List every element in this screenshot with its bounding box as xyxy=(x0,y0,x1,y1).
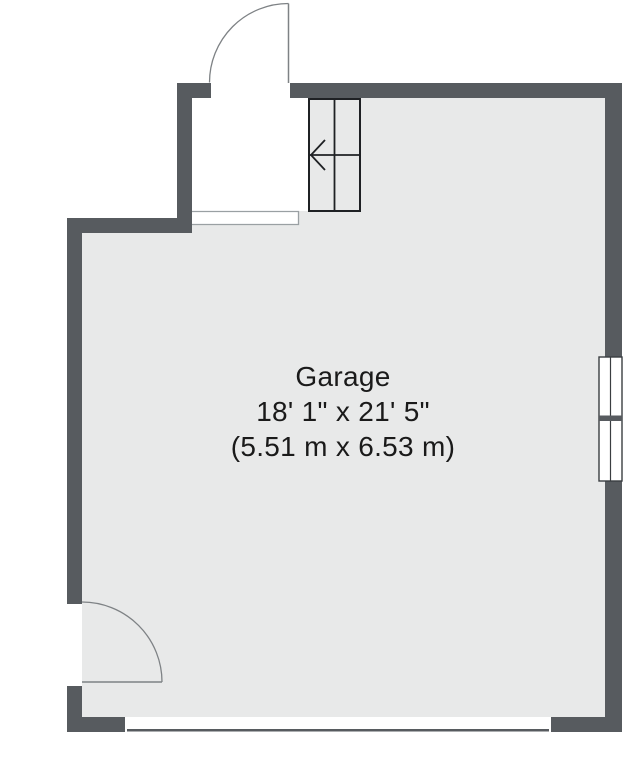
garage-door-line xyxy=(127,729,549,732)
wall-left-upper xyxy=(67,218,82,604)
right-wall-window xyxy=(599,357,622,481)
floor-plan: Garage 18' 1" x 21' 5" (5.51 m x 6.53 m) xyxy=(0,0,625,768)
room-dimensions-imperial: 18' 1" x 21' 5" xyxy=(103,394,583,429)
wall-upper-left-vertical xyxy=(177,83,192,233)
top-door-swing-arc xyxy=(210,4,289,83)
room-name: Garage xyxy=(103,359,583,394)
top-entry-door xyxy=(210,4,289,84)
entry-landing-step xyxy=(192,212,299,225)
wall-bottom-left-corner xyxy=(67,717,125,732)
room-label: Garage 18' 1" x 21' 5" (5.51 m x 6.53 m) xyxy=(103,359,583,464)
window-mullion xyxy=(599,416,622,422)
room-dimensions-metric: (5.51 m x 6.53 m) xyxy=(103,429,583,464)
floor-left-section xyxy=(82,233,192,717)
wall-notch-horizontal xyxy=(67,218,192,233)
entry-vestibule-area xyxy=(192,98,309,211)
wall-top-right xyxy=(290,83,622,98)
